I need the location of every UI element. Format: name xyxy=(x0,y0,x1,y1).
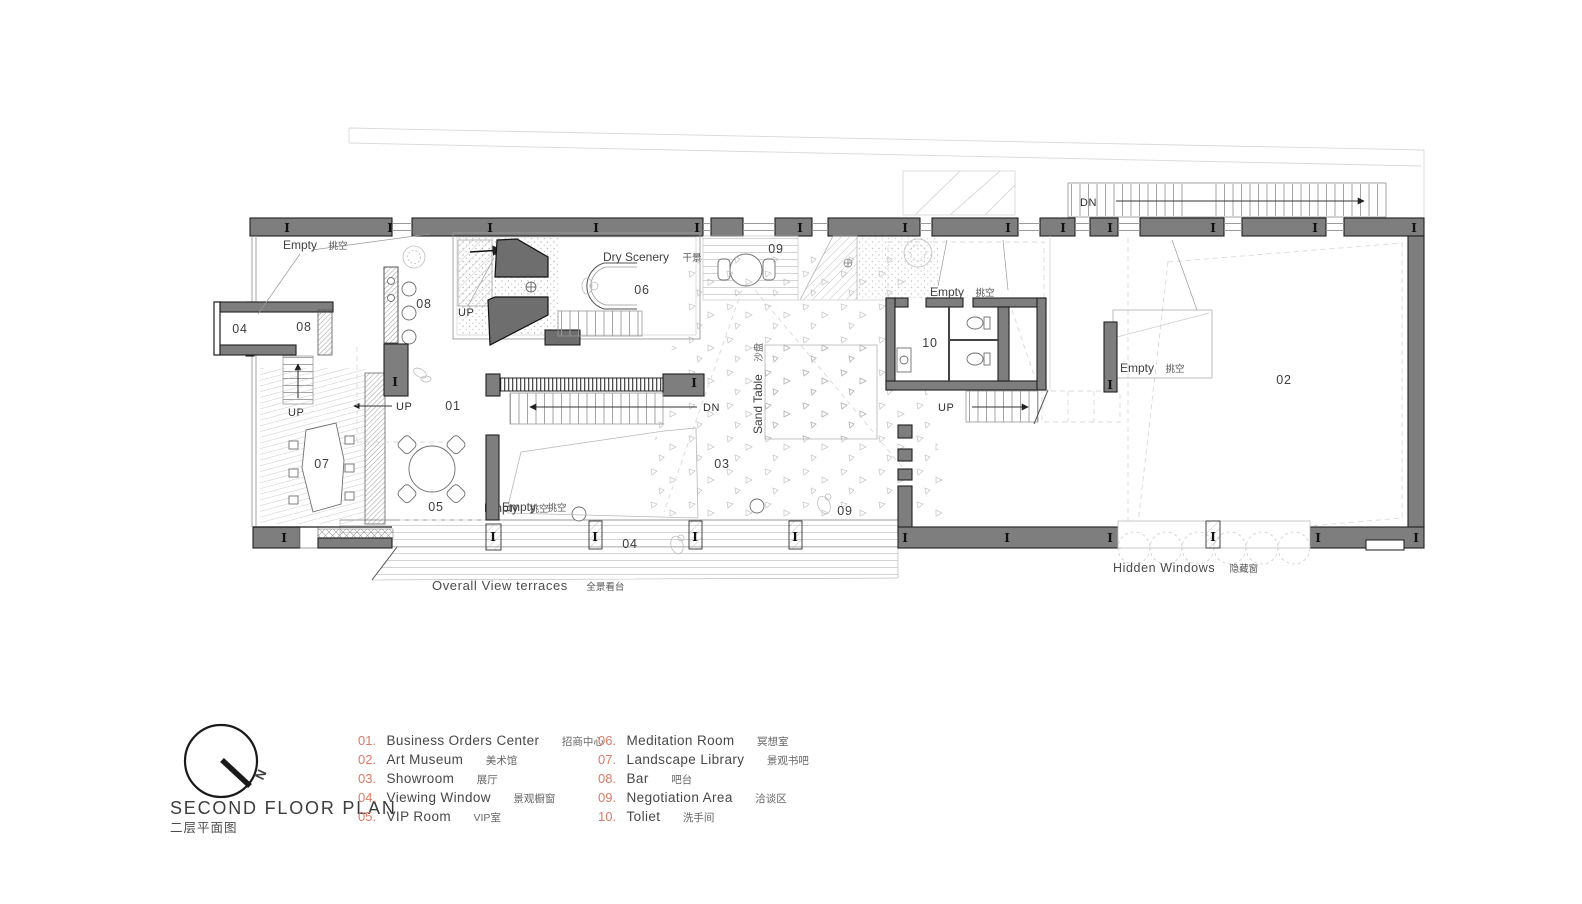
dn-label: DN xyxy=(703,402,720,414)
svg-text:I: I xyxy=(387,221,393,235)
svg-text:I: I xyxy=(1210,530,1216,544)
sheet-title-zh: 二层平面图 xyxy=(170,821,238,835)
skylight xyxy=(903,171,1015,215)
viewing-window-04: 04 08 xyxy=(214,302,333,355)
hatched-pier xyxy=(318,310,332,355)
room-number-08: 08 xyxy=(416,297,432,311)
curved-bench xyxy=(587,263,637,309)
empty-label-02: Empty 挑空 xyxy=(1120,359,1184,376)
svg-text:I: I xyxy=(1004,531,1010,545)
legend-item-02: 02. Art Museum 美术馆 xyxy=(358,751,517,768)
legend-item-09: 09. Negotiation Area 洽谈区 xyxy=(598,789,787,806)
room-number-07: 07 xyxy=(314,457,330,471)
chair xyxy=(445,483,466,504)
column-symbol: I xyxy=(692,530,698,544)
svg-text:I: I xyxy=(1005,221,1011,235)
legend: 01. Business Orders Center 招商中心 02. Art … xyxy=(358,732,809,825)
wood-wall xyxy=(365,373,385,524)
round-table xyxy=(409,446,455,492)
legend-item-06: 06. Meditation Room 冥想室 xyxy=(598,732,789,749)
empty-label-top-left: Empty 挑空 xyxy=(283,236,347,253)
hidden-windows-label: Hidden Windows 隐藏窗 xyxy=(1113,559,1258,576)
room-number-09-lower: 09 xyxy=(837,504,853,518)
up-label: UP xyxy=(458,307,474,319)
person-figure xyxy=(412,366,431,382)
dry-scenery-label: Dry Scenery 干景 xyxy=(603,248,702,265)
legend-item-10: 10. Toliet 洗手间 xyxy=(598,808,714,825)
svg-text:I: I xyxy=(392,375,398,389)
bar-stool xyxy=(402,282,416,296)
svg-text:I: I xyxy=(1411,221,1417,235)
compass-north-label: N xyxy=(252,767,270,782)
chair xyxy=(445,434,466,455)
empty-label-toilet: Empty 挑空 xyxy=(930,283,994,300)
dn-label: DN xyxy=(1080,197,1097,209)
room-number-03: 03 xyxy=(714,457,730,471)
svg-text:I: I xyxy=(902,531,908,545)
chair xyxy=(396,434,417,455)
svg-text:I: I xyxy=(1107,378,1113,392)
svg-text:I: I xyxy=(284,221,290,235)
svg-text:I: I xyxy=(1107,531,1113,545)
room-number-08-left: 08 xyxy=(296,320,312,334)
svg-text:I: I xyxy=(281,531,287,545)
handrail xyxy=(500,378,663,391)
wall-notch xyxy=(1366,540,1404,550)
window-sill xyxy=(318,529,393,538)
tree xyxy=(403,246,425,268)
left-wall xyxy=(246,236,256,527)
svg-text:I: I xyxy=(691,376,697,390)
roof-outline xyxy=(349,128,1424,232)
stair-right-up: UP xyxy=(938,390,1120,424)
wc-fixture xyxy=(967,353,990,365)
legend-item-04: 04. Viewing Window 景观橱窗 xyxy=(358,789,555,806)
bar-stool xyxy=(402,330,416,344)
stair-top-dn: DN xyxy=(1068,183,1386,217)
right-wall xyxy=(1408,236,1424,528)
empty-label-05: Empty 挑空 xyxy=(502,498,566,515)
ceiling-fixture xyxy=(526,282,536,292)
room-number-02: 02 xyxy=(1276,373,1292,387)
up-label-ramp: UP xyxy=(396,401,412,413)
room-number-06: 06 xyxy=(634,283,650,297)
stair-run xyxy=(558,311,642,336)
svg-text:I: I xyxy=(1312,221,1318,235)
svg-text:I: I xyxy=(902,221,908,235)
svg-text:I: I xyxy=(797,221,803,235)
room-number-01: 01 xyxy=(445,399,461,413)
legend-item-08: 08. Bar 吧台 xyxy=(598,770,692,787)
room-number-05: 05 xyxy=(428,500,444,514)
walls-bottom-left: I xyxy=(253,527,393,548)
bar-stool xyxy=(402,306,416,320)
column-symbol: I xyxy=(792,530,798,544)
sink xyxy=(897,348,911,372)
room-number-10: 10 xyxy=(922,336,938,350)
svg-text:I: I xyxy=(1107,221,1113,235)
art-museum-02: I Empty 挑空 02 xyxy=(1050,236,1402,541)
room-number-04-terrace: 04 xyxy=(622,537,638,551)
chair xyxy=(396,483,417,504)
svg-text:I: I xyxy=(1210,221,1216,235)
legend-item-03: 03. Showroom 展厅 xyxy=(358,770,498,787)
legend-item-01: 01. Business Orders Center 招商中心 xyxy=(358,732,604,749)
wc-fixture xyxy=(967,317,990,329)
room-number-04: 04 xyxy=(232,322,248,336)
exterior-walls-top: I I I I I I I I I I I I I xyxy=(250,218,1424,236)
compass-needle xyxy=(222,760,250,786)
legend-item-05: 05. VIP Room VIP室 xyxy=(358,808,501,825)
meditation-room-06: UP Dry Scenery 干景 06 xyxy=(453,233,702,345)
svg-text:I: I xyxy=(1315,531,1321,545)
bar-08: I 08 xyxy=(384,246,432,396)
divider-wall xyxy=(486,435,499,520)
floor-plan-sheet: DN I I I Overall View terraces 全景看台 04 xyxy=(0,0,1582,904)
svg-text:I: I xyxy=(1060,221,1066,235)
floor-plan-drawing: DN I I I Overall View terraces 全景看台 04 xyxy=(0,0,1582,904)
legend-item-07: 07. Landscape Library 景观书吧 xyxy=(598,751,809,768)
terrace-caption: Overall View terraces 全景看台 xyxy=(432,577,624,594)
stair-wedge xyxy=(458,240,492,306)
up-label: UP xyxy=(938,402,954,414)
sand-table xyxy=(765,345,877,439)
svg-text:I: I xyxy=(1413,531,1419,545)
overall-view-terrace: I I I Overall View terraces 全景看台 04 xyxy=(340,520,898,594)
column-symbol: I xyxy=(592,530,598,544)
svg-text:I: I xyxy=(490,530,496,544)
